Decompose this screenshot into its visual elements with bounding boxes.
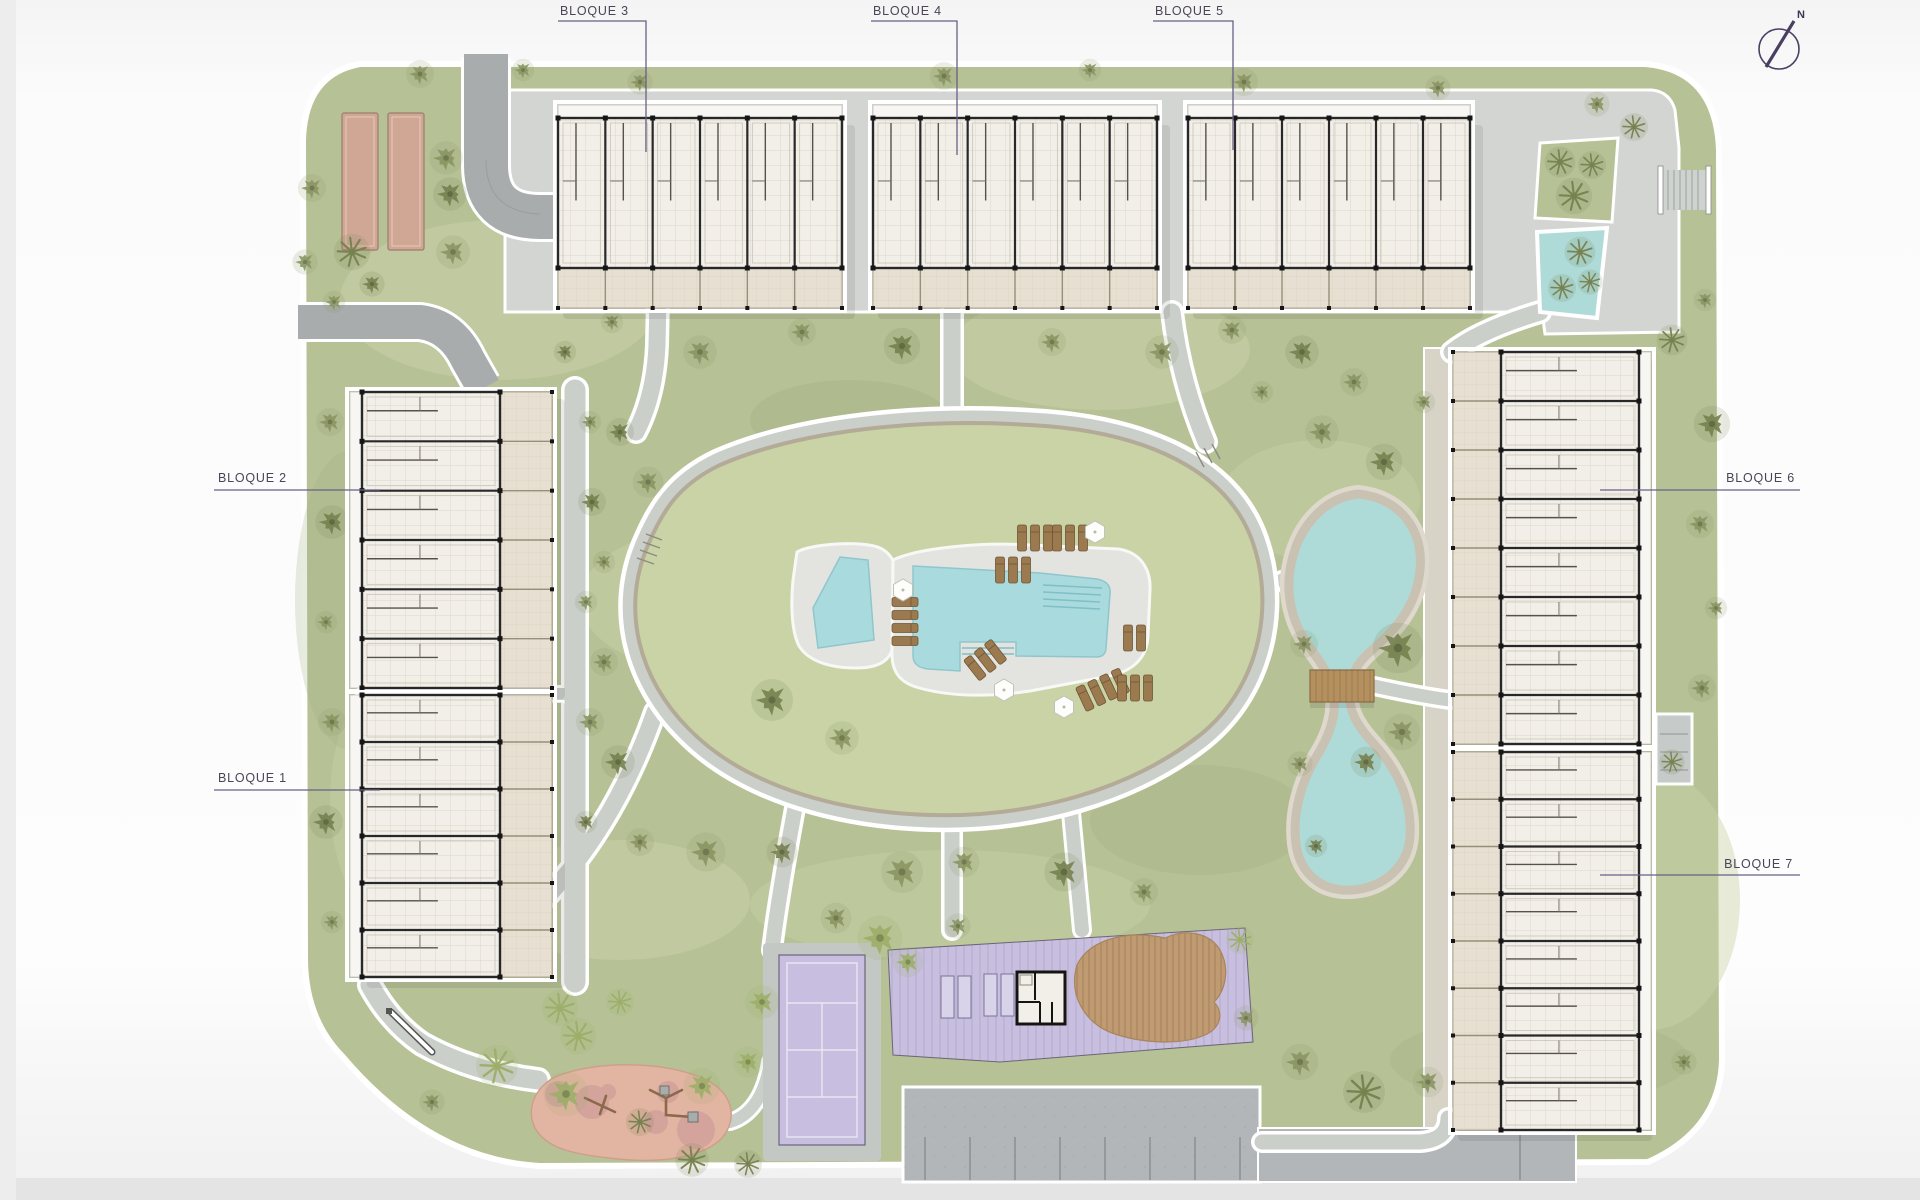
bush-tree [1413, 391, 1435, 413]
bush-tree [893, 947, 924, 978]
bush-tree [1305, 835, 1327, 857]
bush-tree [684, 1068, 720, 1104]
bush-tree [1233, 1005, 1258, 1030]
bush-tree [1251, 381, 1273, 403]
bush-tree [323, 291, 345, 313]
bush-tree [606, 418, 634, 446]
north-compass: N [1759, 9, 1805, 69]
bush-tree [626, 828, 654, 856]
label-text: BLOQUE 1 [218, 771, 287, 785]
bush-tree [633, 467, 664, 498]
bush-tree [1351, 747, 1382, 778]
bush-tree [554, 341, 576, 363]
palm-tree [1659, 749, 1684, 774]
bush-tree [1230, 68, 1258, 96]
umbrella-icon [1055, 696, 1074, 718]
label-text: BLOQUE 2 [218, 471, 287, 485]
bush-tree [1145, 335, 1179, 369]
sun-lounger-group [1053, 525, 1088, 551]
bush-tree [316, 408, 344, 436]
left-edge-band [0, 0, 16, 1200]
bush-tree [1282, 1044, 1318, 1080]
building-bloque-4 [870, 102, 1170, 319]
bush-tree [1305, 415, 1339, 449]
bush-tree [436, 235, 470, 269]
bush-tree [1079, 59, 1101, 81]
bush-tree [821, 903, 852, 934]
bush-tree [429, 141, 463, 175]
sun-lounger-group [996, 557, 1031, 583]
parking-area [903, 1087, 1260, 1182]
north-letter: N [1797, 9, 1805, 21]
palm-tree [1545, 147, 1576, 178]
label-text: BLOQUE 6 [1726, 471, 1795, 485]
palm-tree [334, 234, 370, 270]
bush-tree [627, 69, 652, 94]
bush-tree [1218, 316, 1246, 344]
bush-tree [315, 505, 349, 539]
bush-tree [1584, 91, 1609, 116]
bush-tree [1290, 630, 1318, 658]
site-plan-svg: BLOQUE 3 BLOQUE 4 BLOQUE 5 BLOQUE 2 BLOQ… [0, 0, 1920, 1200]
building-bloque-2 [347, 389, 565, 699]
bush-tree [745, 985, 779, 1019]
bush-tree [544, 1072, 589, 1117]
bush-tree [1287, 751, 1312, 776]
palm-tree [1578, 151, 1606, 179]
bush-tree [433, 177, 467, 211]
bush-tree [359, 271, 384, 296]
bush-tree [1130, 878, 1158, 906]
bush-tree [930, 62, 958, 90]
bush-tree [315, 611, 337, 633]
bush-tree [512, 59, 534, 81]
bush-tree [825, 721, 859, 755]
bush-tree [575, 591, 597, 613]
bush-tree [1044, 852, 1083, 891]
umbrella-icon [894, 579, 913, 601]
label-text: BLOQUE 4 [873, 4, 942, 18]
pool-house-plan [1017, 972, 1065, 1024]
building-bloque-1 [347, 692, 565, 988]
bush-tree [406, 60, 434, 88]
bush-tree [579, 411, 601, 433]
bush-tree [683, 335, 717, 369]
palm-tree [675, 1143, 709, 1177]
bush-tree [1688, 674, 1716, 702]
bush-tree [1038, 328, 1066, 356]
sun-lounger-group [1118, 675, 1153, 701]
palm-tree [1577, 269, 1602, 294]
bush-tree [949, 847, 980, 878]
palm-tree [1556, 178, 1592, 214]
sun-lounger-group [1018, 525, 1053, 551]
label-text: BLOQUE 7 [1724, 857, 1793, 871]
bush-tree [593, 551, 615, 573]
bush-tree [1384, 714, 1420, 750]
bush-tree [575, 811, 597, 833]
bush-tree [298, 174, 326, 202]
bush-tree [1340, 368, 1368, 396]
bush-tree [1373, 623, 1423, 673]
palm-tree [1226, 926, 1254, 954]
bush-tree [881, 851, 923, 893]
lake-bridge [1310, 670, 1374, 708]
label-text: BLOQUE 3 [560, 4, 629, 18]
bush-tree [292, 249, 317, 274]
site-plan-canvas: BLOQUE 3 BLOQUE 4 BLOQUE 5 BLOQUE 2 BLOQ… [0, 0, 1920, 1200]
palm-tree [1620, 113, 1648, 141]
bush-tree [321, 911, 343, 933]
umbrella-icon [1086, 521, 1105, 543]
palm-tree [1548, 274, 1576, 302]
bush-tree [788, 318, 816, 346]
building-bloque-7 [1450, 749, 1654, 1141]
bush-tree [751, 679, 793, 721]
bush-tree [1671, 1049, 1696, 1074]
bush-tree [1686, 510, 1714, 538]
building-bloque-6 [1450, 349, 1654, 755]
stairs [1658, 166, 1711, 214]
community-platform [888, 928, 1253, 1062]
bush-tree [1705, 597, 1727, 619]
building-bloque-3 [555, 102, 855, 319]
bush-tree [686, 832, 725, 871]
bush-tree [1413, 1067, 1444, 1098]
bush-tree [601, 745, 635, 779]
building-bloque-5 [1185, 102, 1483, 319]
tennis-court-zone [763, 943, 881, 1161]
palm-tree [1565, 237, 1596, 268]
bush-tree [309, 805, 343, 839]
label-text: BLOQUE 5 [1155, 4, 1224, 18]
palm-tree [606, 988, 634, 1016]
bush-tree [578, 488, 606, 516]
bush-tree [1694, 289, 1716, 311]
compass-needle-icon [1766, 21, 1794, 67]
bush-tree [945, 913, 970, 938]
palm-tree [626, 1108, 654, 1136]
bush-tree [733, 1047, 764, 1078]
bush-tree [1366, 444, 1402, 480]
bush-tree [318, 708, 346, 736]
bush-tree [1425, 75, 1450, 100]
compass-circle [1759, 29, 1799, 69]
umbrella-icon [995, 679, 1014, 701]
bush-tree [767, 837, 798, 868]
bush-tree [884, 328, 920, 364]
wooden-deck [1075, 933, 1226, 1042]
palm-tree [476, 1045, 518, 1087]
palm-tree [734, 1150, 762, 1178]
bush-tree [419, 1089, 444, 1114]
bush-tree [576, 708, 604, 736]
palm-tree [1343, 1071, 1385, 1113]
bush-tree [590, 648, 618, 676]
bush-tree [1694, 406, 1730, 442]
palm-tree [1657, 325, 1688, 356]
palm-tree [560, 1018, 596, 1054]
bush-tree [1285, 335, 1319, 369]
